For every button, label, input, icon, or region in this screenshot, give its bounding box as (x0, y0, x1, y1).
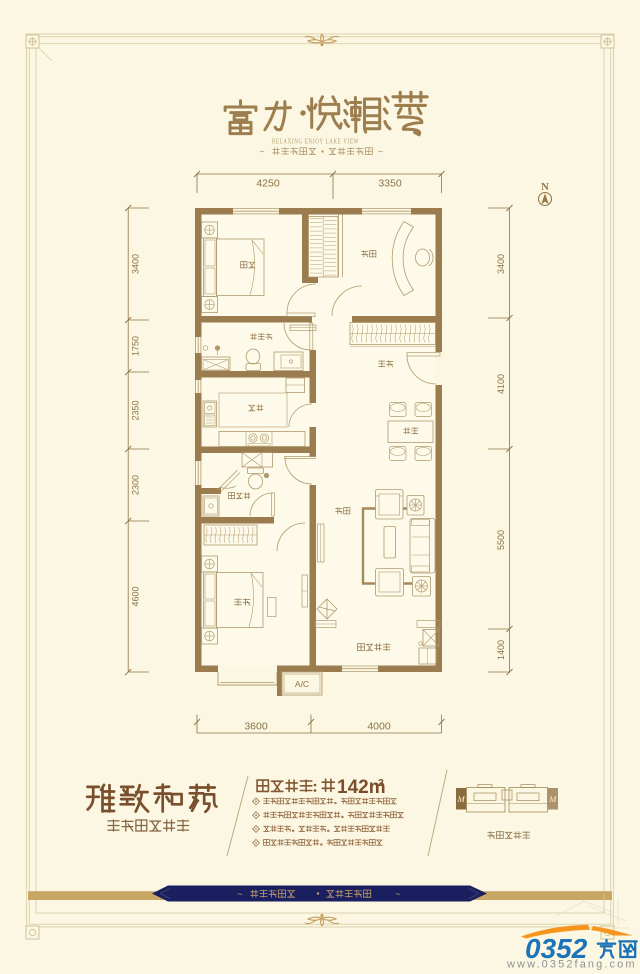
svg-text:5500: 5500 (496, 530, 506, 550)
svg-text:3350: 3350 (378, 178, 402, 190)
svg-text:3400: 3400 (496, 254, 506, 274)
svg-text:M: M (457, 794, 466, 804)
svg-text:RELAXING ENJOY LAKE VIEW: RELAXING ENJOY LAKE VIEW (272, 138, 359, 146)
svg-text:2350: 2350 (131, 400, 141, 420)
svg-text:2300: 2300 (131, 475, 141, 495)
svg-text:4100: 4100 (496, 374, 506, 394)
svg-text:A/C: A/C (295, 679, 309, 689)
svg-text:1400: 1400 (496, 640, 506, 660)
svg-text:~: ~ (237, 889, 242, 899)
svg-text:3400: 3400 (131, 254, 141, 274)
svg-text:4250: 4250 (256, 178, 280, 190)
svg-text:1750: 1750 (131, 336, 141, 356)
svg-text:~: ~ (259, 147, 264, 157)
svg-text:2: 2 (378, 777, 384, 789)
svg-text:N: N (541, 181, 549, 193)
svg-text:~: ~ (395, 889, 400, 899)
svg-text:~: ~ (378, 147, 383, 157)
svg-text:4000: 4000 (367, 721, 391, 733)
svg-text:www.0352fang.com: www.0352fang.com (506, 959, 637, 971)
svg-text:3600: 3600 (244, 721, 268, 733)
svg-text:M: M (548, 794, 557, 804)
svg-text:4600: 4600 (131, 586, 141, 606)
